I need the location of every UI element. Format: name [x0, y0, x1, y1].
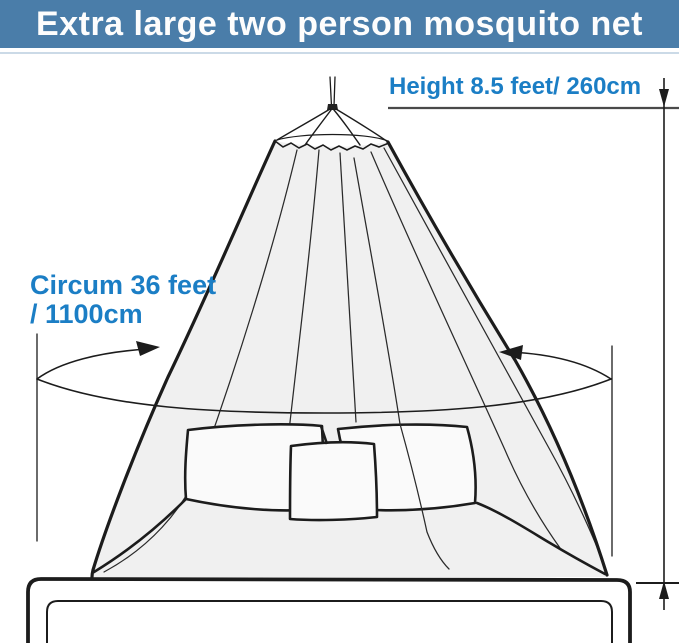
- height-arrowhead-down: [659, 89, 669, 107]
- bed-frame-inner: [47, 601, 612, 643]
- circumference-label-line1: Circum 36 feet: [30, 271, 216, 300]
- bed-frame-outer: [28, 579, 630, 643]
- circumference-label: Circum 36 feet / 1100cm: [30, 271, 216, 329]
- hanging-cord: [330, 77, 335, 106]
- circumference-arrowhead-left: [136, 341, 160, 356]
- cone-fan-lines: [277, 109, 388, 145]
- bed-frame: [28, 579, 630, 643]
- pillow-center: [290, 442, 377, 520]
- circumference-label-line2: / 1100cm: [30, 300, 216, 329]
- height-dimension-label: Height 8.5 feet/ 260cm: [389, 73, 641, 101]
- canopy-top: [275, 77, 389, 150]
- circumference-arrow-left: [37, 349, 148, 379]
- ring-back-edge: [277, 135, 388, 142]
- mosquito-net-diagram: Extra large two person mosquito net: [0, 0, 679, 643]
